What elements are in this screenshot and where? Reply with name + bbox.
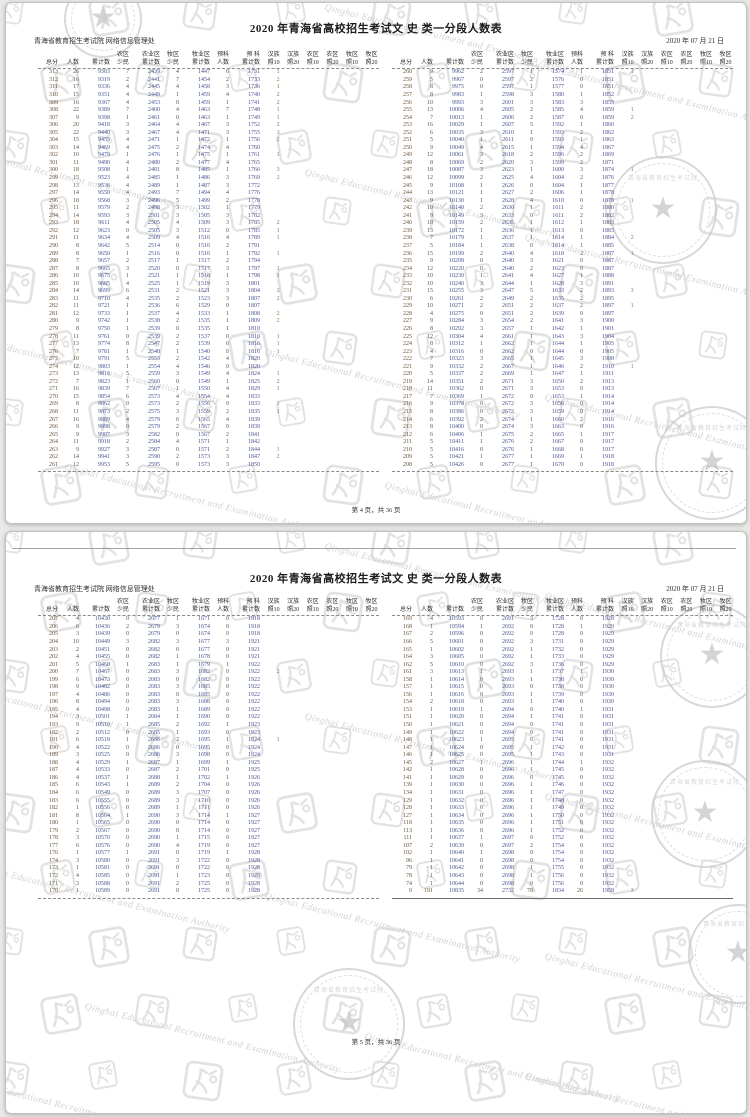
table-cell: 10316 (433, 349, 464, 357)
table-cell: 牧区 (712, 51, 732, 59)
table-cell: 0 (160, 677, 179, 685)
table-cell: 1647 (533, 371, 564, 379)
table-cell: 牧区 (514, 51, 533, 59)
table-cell: 0 (160, 266, 179, 274)
table-cell: 204 (38, 639, 58, 647)
table-cell (319, 813, 339, 821)
table-cell (358, 273, 378, 281)
table-cell: 0 (160, 828, 179, 836)
table-cell (653, 251, 673, 259)
table-cell: 2584 (129, 439, 160, 447)
table-cell (634, 349, 654, 357)
table-cell (358, 631, 378, 639)
table-cell (712, 198, 732, 206)
table-cell: 2 (464, 69, 483, 77)
table-cell: 2 (110, 439, 129, 447)
table-cell: 农业区 (483, 51, 514, 59)
table-cell (614, 84, 634, 92)
table-cell: 16 (412, 122, 433, 130)
table-cell (338, 137, 358, 145)
table-cell: 2 (260, 288, 280, 296)
table-cell (280, 115, 300, 123)
table-cell: 306 (38, 122, 58, 130)
table-cell: 293 (38, 220, 58, 228)
table-cell (712, 107, 732, 115)
table-cell: 2 (564, 213, 583, 221)
table-cell: 0 (564, 631, 583, 639)
table-cell (338, 677, 358, 685)
table-cell: 照10 (614, 59, 634, 67)
table-cell (692, 454, 712, 462)
table-cell (280, 662, 300, 670)
table-cell (358, 198, 378, 206)
table-cell: 2676 (483, 447, 514, 455)
table-cell: 10641 (433, 858, 464, 866)
table-cell: 0 (564, 311, 583, 319)
table-cell: 10628 (433, 767, 464, 775)
table-cell: 1 (260, 447, 280, 455)
table-cell: 3 (514, 258, 533, 266)
table-cell: 0 (464, 692, 483, 700)
table-cell: 2554 (129, 364, 160, 372)
table-cell (673, 820, 693, 828)
table-cell (319, 447, 339, 455)
table-cell: 1751 (533, 820, 564, 828)
table-cell (338, 639, 358, 647)
table-cell (614, 349, 634, 357)
table-cell (673, 409, 693, 417)
table-cell (692, 760, 712, 768)
table-cell: 277 (38, 341, 58, 349)
table-cell: 2505 (129, 220, 160, 228)
table-cell: 2 (160, 881, 179, 889)
table-cell: 1917 (583, 439, 614, 447)
table-cell: 1742 (533, 745, 564, 753)
table-cell: 3 (210, 454, 229, 462)
table-cell: 2679 (129, 631, 160, 639)
table-cell (634, 190, 654, 198)
table-cell (634, 737, 654, 745)
table-cell (299, 790, 319, 798)
table-cell (712, 654, 732, 662)
table-cell: 12 (58, 462, 79, 470)
table-cell (673, 205, 693, 213)
table-cell (338, 213, 358, 221)
table-cell (614, 684, 634, 692)
table-cell: 217 (392, 394, 412, 402)
table-cell: 9873 (79, 409, 110, 417)
table-cell: 0 (110, 699, 129, 707)
table-cell: 156 (392, 692, 412, 700)
table-cell: 0 (110, 730, 129, 738)
table-cell: 0 (464, 873, 483, 881)
table-cell (260, 213, 280, 221)
table-cell (319, 220, 339, 228)
table-row: 167210596026920172801929 (392, 631, 733, 639)
table-cell (653, 843, 673, 851)
table-cell (280, 888, 300, 896)
table-cell: 1755 (229, 130, 260, 138)
table-cell (358, 820, 378, 828)
table-cell (653, 175, 673, 183)
table-cell: 1 (564, 341, 583, 349)
table-cell (358, 152, 378, 160)
agency-label: 青海省教育招生考试院 网络信息管理处 (34, 36, 155, 46)
table-cell: 9699 (79, 288, 110, 296)
table-cell (280, 311, 300, 319)
table-cell: 1820 (229, 356, 260, 364)
table-cell: 2 (160, 341, 179, 349)
table-cell: 1 (514, 341, 533, 349)
table-cell (614, 183, 634, 191)
table-cell: 1 (110, 722, 129, 730)
left-score-table: 农区农业区牧区牧业区预科预 科汉族汉族农区农区牧区牧区 总分人数累计数少民累计数… (38, 598, 379, 899)
table-cell (673, 145, 693, 153)
table-cell: 6 (58, 790, 79, 798)
table-cell: 1851 (583, 69, 614, 77)
table-cell: 10614 (433, 677, 464, 685)
table-cell: 3 (160, 228, 179, 236)
table-cell (299, 107, 319, 115)
table-cell: 1921 (229, 647, 260, 655)
table-cell: 0 (110, 873, 129, 881)
table-cell (280, 745, 300, 753)
table-cell: 272 (38, 379, 58, 387)
table-cell (653, 198, 673, 206)
table-cell (634, 707, 654, 715)
table-cell: 5 (514, 288, 533, 296)
table-cell: 10369 (433, 394, 464, 402)
table-cell (319, 699, 339, 707)
table-cell (358, 692, 378, 700)
table-cell: 农区 (653, 51, 673, 59)
table-cell: 1516 (179, 251, 210, 259)
table-cell (673, 730, 693, 738)
table-cell: 239 (392, 228, 412, 236)
table-cell (712, 616, 732, 624)
table-cell: 8 (58, 813, 79, 821)
table-cell (58, 598, 79, 606)
table-cell: 1645 (533, 356, 564, 364)
table-cell: 310 (38, 92, 58, 100)
table-cell (712, 782, 732, 790)
table-cell (358, 334, 378, 342)
table-cell (280, 858, 300, 866)
table-cell: 照20 (673, 59, 693, 67)
table-cell (634, 760, 654, 768)
table-cell (280, 190, 300, 198)
table-cell (673, 77, 693, 85)
table-cell: 3 (110, 454, 129, 462)
table-cell: 3 (260, 130, 280, 138)
table-cell (79, 598, 110, 606)
table-cell: 1746 (533, 782, 564, 790)
table-cell (634, 714, 654, 722)
table-cell: 1 (260, 349, 280, 357)
table-cell: 1656 (533, 401, 564, 409)
table-cell: 2 (412, 631, 433, 639)
table-cell: 1606 (533, 190, 564, 198)
table-cell (712, 850, 732, 858)
table-cell (319, 84, 339, 92)
table-cell (653, 190, 673, 198)
table-cell: 2605 (483, 107, 514, 115)
table-cell: 2 (210, 409, 229, 417)
table-cell: 1 (412, 722, 433, 730)
table-cell: 1867 (583, 145, 614, 153)
table-cell: 1748 (229, 107, 260, 115)
table-cell (358, 92, 378, 100)
table-cell (653, 288, 673, 296)
table-cell: 231 (392, 288, 412, 296)
table-cell: 0 (464, 798, 483, 806)
table-cell (673, 235, 693, 243)
table-cell (319, 662, 339, 670)
table-cell: 9761 (79, 334, 110, 342)
table-cell: 183 (38, 798, 58, 806)
table-cell (338, 730, 358, 738)
table-cell: 1 (210, 311, 229, 319)
table-cell: 1604 (533, 175, 564, 183)
table-cell: 1 (58, 820, 79, 828)
table-cell (673, 183, 693, 191)
table-cell: 9993 (433, 100, 464, 108)
table-cell: 2685 (129, 722, 160, 730)
table-cell: 10640 (433, 850, 464, 858)
agency-label: 青海省教育招生考试院 网络信息管理处 (34, 584, 155, 594)
table-cell: 1677 (179, 647, 210, 655)
table-cell (319, 737, 339, 745)
table-cell: 1583 (533, 100, 564, 108)
table-cell: 3 (58, 752, 79, 760)
table-cell: 1 (210, 318, 229, 326)
table-cell: 2535 (129, 296, 160, 304)
table-row: 195410498026831168901922 (38, 707, 379, 715)
table-cell (614, 220, 634, 228)
table-cell: 0 (464, 881, 483, 889)
table-cell: 10576 (79, 843, 110, 851)
table-cell: 10543 (79, 782, 110, 790)
table-cell (614, 296, 634, 304)
table-cell: 1738 (533, 684, 564, 692)
table-cell: 275 (38, 356, 58, 364)
table-cell: 0 (160, 850, 179, 858)
table-cell (299, 730, 319, 738)
table-cell: 1754 (533, 858, 564, 866)
table-cell (712, 858, 732, 866)
table-cell: 1521 (179, 288, 210, 296)
table-row: 113110636026961175201932 (392, 828, 733, 836)
table-cell: 10 (58, 356, 79, 364)
table-cell (338, 662, 358, 670)
table-cell: 0 (564, 84, 583, 92)
table-cell: 194 (38, 714, 58, 722)
table-cell: 9 (58, 318, 79, 326)
table-cell: 2531 (129, 288, 160, 296)
table-row: 2781197610253921537018101 (38, 334, 379, 342)
table-cell (614, 394, 634, 402)
table-row: 149110622026940174101931 (392, 730, 733, 738)
table-cell (614, 137, 634, 145)
table-cell (634, 662, 654, 670)
table-cell: 0 (210, 843, 229, 851)
table-cell: 1808 (229, 311, 260, 319)
table-row: 235910208026403162101887 (392, 258, 733, 266)
table-cell: 1472 (179, 137, 210, 145)
table-cell: 9 (412, 213, 433, 221)
table-cell: 1 (260, 84, 280, 92)
table-row: 197410486026830168501922 (38, 692, 379, 700)
table-cell: 236 (392, 251, 412, 259)
table-row: 162510610026923173601929 (392, 662, 733, 670)
table-cell (338, 288, 358, 296)
table-cell (280, 69, 300, 77)
table-cell (358, 311, 378, 319)
table-cell (260, 722, 280, 730)
table-cell (358, 850, 378, 858)
table-cell (299, 752, 319, 760)
table-cell: 人数 (210, 59, 229, 67)
table-cell: 1834 (533, 888, 564, 896)
table-cell (260, 243, 280, 251)
table-cell: 2690 (129, 813, 160, 821)
table-cell (280, 843, 300, 851)
table-cell: 228 (392, 311, 412, 319)
table-cell: 3 (464, 281, 483, 289)
table-cell (712, 341, 732, 349)
table-cell (299, 760, 319, 768)
table-cell: 1932 (583, 865, 614, 873)
table-cell: 1740 (533, 699, 564, 707)
table-cell: 1 (160, 137, 179, 145)
table-cell: 268 (38, 409, 58, 417)
table-cell: 1674 (179, 631, 210, 639)
table-cell: 0 (464, 745, 483, 753)
table-cell: 2539 (129, 334, 160, 342)
table-cell (614, 790, 634, 798)
table-cell (280, 439, 300, 447)
table-cell: 2559 (129, 371, 160, 379)
table-cell: 1930 (583, 684, 614, 692)
table-cell: 222 (392, 356, 412, 364)
table-row: 198910482026833168501922 (38, 684, 379, 692)
table-cell: 1487 (179, 183, 210, 191)
table-cell (634, 205, 654, 213)
table-cell: 1 (412, 805, 433, 813)
table-cell: 1 (160, 349, 179, 357)
table-cell: 9657 (79, 258, 110, 266)
table-cell: 农区 (653, 598, 673, 606)
table-cell: 171 (38, 881, 58, 889)
table-cell: 3 (514, 409, 533, 417)
table-cell (634, 167, 654, 175)
table-cell (280, 145, 300, 153)
table-cell: 10108 (433, 183, 464, 191)
table-cell (358, 737, 378, 745)
table-cell: 2694 (483, 714, 514, 722)
table-cell: 2514 (129, 243, 160, 251)
table-cell (280, 669, 300, 677)
table-cell: 4 (58, 873, 79, 881)
table-cell: 2439 (129, 69, 160, 77)
table-cell: 1 (110, 318, 129, 326)
table-cell (673, 647, 693, 655)
table-cell: 1611 (533, 205, 564, 213)
table-cell: 186 (38, 775, 58, 783)
table-row: 26699898025792156701839 (38, 424, 379, 432)
table-cell: 0 (564, 775, 583, 783)
table-cell: 129 (392, 798, 412, 806)
table-cell: 1 (210, 379, 229, 387)
table-cell: 1 (614, 69, 634, 77)
table-cell: 牧区 (160, 598, 179, 606)
table-cell (280, 273, 300, 281)
table-cell (653, 258, 673, 266)
table-row: 2841496996253121521318042 (38, 288, 379, 296)
table-cell (260, 858, 280, 866)
table-cell (299, 624, 319, 632)
table-cell: 1741 (533, 714, 564, 722)
table-cell (319, 356, 339, 364)
table-cell (712, 745, 732, 753)
table-cell (280, 462, 300, 470)
right-score-table: 农区农业区牧区牧业区预科预 科汉族汉族农区农区牧区牧区 总分人数累计数少民累计数… (392, 51, 733, 472)
table-cell (692, 281, 712, 289)
table-row: 217710369126720165311914 (392, 394, 733, 402)
table-cell: 1701 (179, 767, 210, 775)
table-cell: 1 (514, 654, 533, 662)
table-cell: 9 (58, 684, 79, 692)
table-cell (280, 616, 300, 624)
table-cell: 2618 (483, 152, 514, 160)
table-cell (338, 752, 358, 760)
table-cell: 197 (38, 692, 58, 700)
table-cell: 2689 (129, 798, 160, 806)
table-cell: 2675 (483, 432, 514, 440)
table-cell (614, 122, 634, 130)
table-cell (319, 624, 339, 632)
table-cell (260, 813, 280, 821)
table-cell (319, 107, 339, 115)
table-cell (692, 692, 712, 700)
table-cell (634, 281, 654, 289)
table-cell: 4 (514, 273, 533, 281)
table-cell: 1 (412, 737, 433, 745)
table-cell: 10255 (433, 288, 464, 296)
table-cell: 10580 (79, 858, 110, 866)
table-cell: 2 (260, 220, 280, 228)
table-cell: 0 (210, 631, 229, 639)
table-cell: 1 (260, 401, 280, 409)
table-cell (358, 190, 378, 198)
table-cell: 0 (464, 447, 483, 455)
table-cell: 3 (58, 714, 79, 722)
table-cell (260, 881, 280, 889)
table-cell (634, 790, 654, 798)
table-row: 156110616026931173901930 (392, 692, 733, 700)
table-cell: 2560 (129, 379, 160, 387)
table-cell (280, 251, 300, 259)
table-cell: 农区 (110, 598, 129, 606)
table-cell (712, 69, 732, 77)
table-cell (634, 92, 654, 100)
table-cell: 1 (564, 432, 583, 440)
table-cell (358, 84, 378, 92)
table-cell: 1924 (229, 752, 260, 760)
table-cell: 0 (564, 798, 583, 806)
table-cell (614, 77, 634, 85)
table-cell (280, 790, 300, 798)
